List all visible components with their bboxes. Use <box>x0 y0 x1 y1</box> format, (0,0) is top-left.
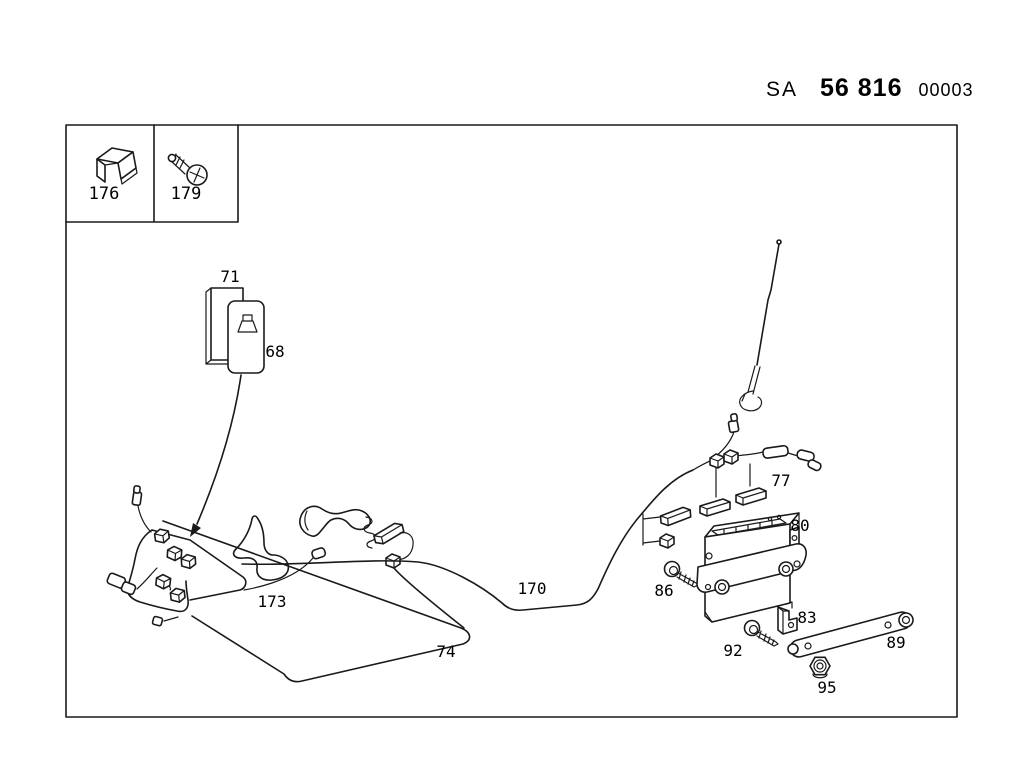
part-label-95: 95 <box>817 678 836 697</box>
cradle-68 <box>228 301 264 373</box>
shifter-outline <box>234 516 289 580</box>
part-label-80: 80 <box>790 516 809 535</box>
part-label-89: 89 <box>886 633 905 652</box>
cable-74: 74 <box>163 521 470 682</box>
control-unit-80: 80 <box>697 513 810 622</box>
antenna-plug <box>728 420 739 432</box>
part-label-173: 173 <box>258 592 287 611</box>
part-label-71: 71 <box>220 267 239 286</box>
retaining-clip-icon <box>97 148 137 184</box>
connector-cube <box>181 554 196 569</box>
connector-cube <box>724 450 738 464</box>
connector-cube <box>156 574 171 589</box>
leader-arrow-line <box>197 375 241 524</box>
antenna <box>740 240 781 411</box>
handset-cradle-assembly: 71 68 <box>190 267 285 537</box>
part-label-83: 83 <box>797 608 816 627</box>
diagram-frame <box>66 125 957 717</box>
nut-95: 95 <box>810 657 837 697</box>
connector-cube <box>710 454 724 468</box>
connector-cube <box>170 588 185 603</box>
pin-connector <box>152 616 163 626</box>
part-label-86: 86 <box>654 581 673 600</box>
antenna-plug-tip <box>731 414 738 422</box>
connector-box <box>700 499 730 516</box>
part-label-92: 92 <box>723 641 742 660</box>
connector-box <box>736 488 766 505</box>
screw-86: 86 <box>654 562 698 601</box>
inset-parts-box: 176 179 <box>66 125 238 222</box>
part-label-74: 74 <box>436 642 455 661</box>
bullet-terminal <box>807 459 822 472</box>
parts-diagram-canvas: 176 179 71 68 <box>0 0 1024 769</box>
barrel-connector <box>121 581 137 595</box>
cable-170: 170 <box>242 470 693 610</box>
connector-cube <box>167 546 182 561</box>
parts-diagram-page: SA 56 816 00003 <box>0 0 1024 769</box>
pin-connector-cap <box>133 486 140 494</box>
part-label-68: 68 <box>265 342 284 361</box>
connector-cube <box>660 534 674 548</box>
part-label-176: 176 <box>89 184 120 204</box>
screw-92: 92 <box>723 621 778 661</box>
part-label-77: 77 <box>771 471 790 490</box>
part-label-170: 170 <box>518 579 547 598</box>
connector-box <box>660 507 691 526</box>
part-label-179: 179 <box>171 184 202 204</box>
clip-83: 83 <box>778 602 817 634</box>
bullet-terminal <box>762 445 788 458</box>
handset-plug-connector <box>372 522 405 546</box>
screw-icon <box>168 154 207 185</box>
